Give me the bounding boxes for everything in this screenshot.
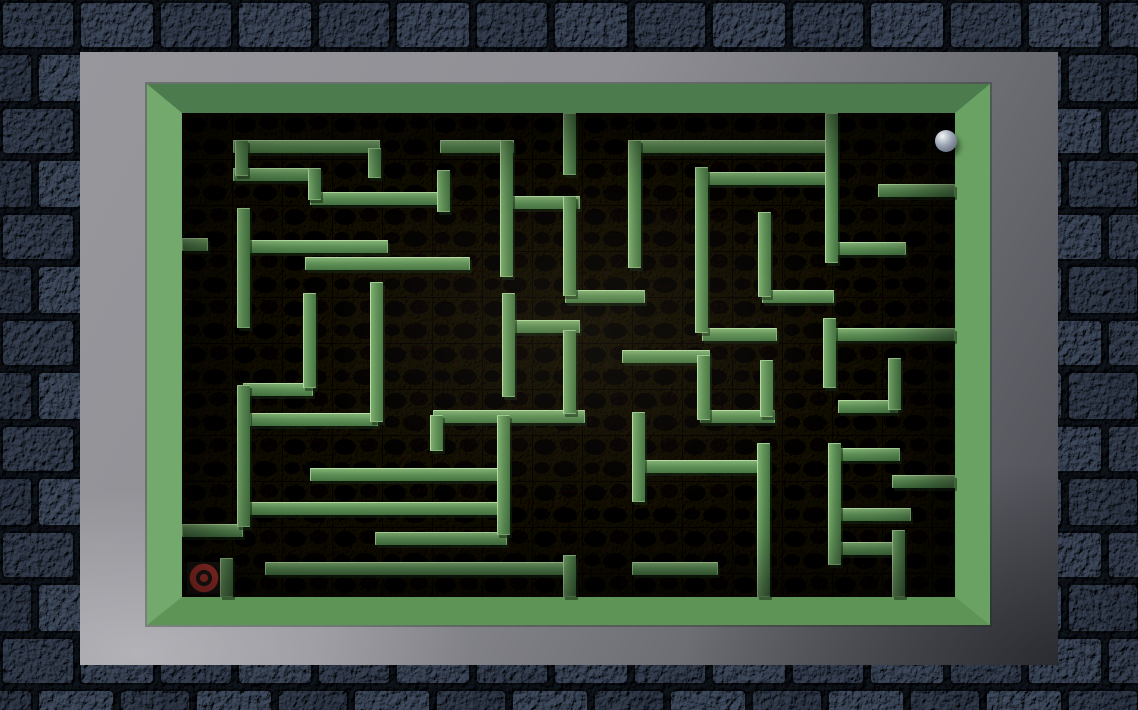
marble-ball[interactable]	[935, 130, 957, 152]
maze-wall	[220, 558, 233, 597]
maze-wall	[237, 208, 250, 328]
maze-wall	[632, 562, 718, 575]
maze-wall	[430, 415, 443, 451]
maze-wall	[630, 140, 832, 153]
maze-wall	[237, 385, 250, 527]
maze-wall	[250, 413, 378, 426]
maze-wall	[892, 530, 905, 597]
maze-wall	[182, 524, 243, 537]
maze-wall	[758, 212, 771, 297]
maze-wall	[830, 242, 906, 255]
maze-wall	[757, 443, 770, 597]
maze-wall	[563, 113, 576, 175]
maze-wall	[235, 140, 248, 176]
maze-wall	[888, 358, 901, 410]
maze-wall	[702, 328, 777, 341]
maze-wall	[563, 196, 576, 296]
maze-wall	[835, 542, 900, 555]
maze-wall	[703, 172, 833, 185]
maze-wall	[760, 360, 773, 417]
maze-wall	[563, 330, 576, 414]
maze-wall	[565, 290, 645, 303]
maze-wall	[375, 532, 507, 545]
maze-wall	[828, 443, 841, 565]
maze-wall	[370, 282, 383, 422]
maze-board[interactable]	[0, 0, 1138, 710]
maze-wall	[437, 170, 450, 212]
maze-wall	[182, 238, 208, 251]
maze-wall	[827, 328, 955, 341]
maze-wall	[303, 293, 316, 388]
maze-wall	[878, 184, 955, 197]
maze-wall	[310, 192, 448, 205]
maze-wall	[823, 318, 836, 388]
maze-wall	[697, 355, 710, 420]
maze-wall	[563, 555, 576, 597]
maze-wall	[310, 468, 505, 481]
maze-wall	[892, 475, 955, 488]
maze-wall	[368, 148, 381, 178]
maze-wall	[825, 113, 838, 263]
walls-layer	[0, 0, 1138, 710]
maze-wall	[245, 502, 507, 515]
maze-wall	[265, 562, 575, 575]
maze-wall	[628, 140, 641, 268]
maze-wall	[233, 140, 380, 153]
maze-wall	[632, 412, 645, 502]
maze-wall	[502, 293, 515, 397]
maze-wall	[638, 460, 764, 473]
maze-wall	[245, 240, 388, 253]
maze-wall	[305, 257, 470, 270]
game-canvas[interactable]	[0, 0, 1138, 710]
maze-wall	[695, 167, 708, 333]
maze-wall	[835, 508, 911, 521]
maze-wall	[497, 415, 510, 535]
maze-wall	[308, 168, 321, 200]
maze-wall	[500, 140, 513, 277]
maze-wall	[762, 290, 834, 303]
